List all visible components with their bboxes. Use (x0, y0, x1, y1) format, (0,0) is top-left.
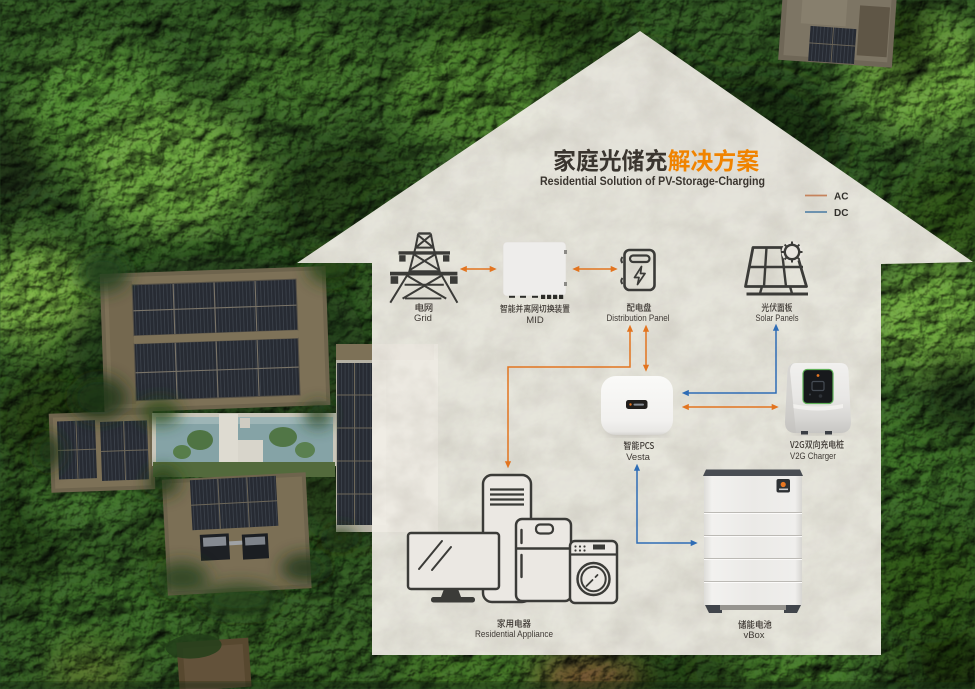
svg-text:Grid: Grid (414, 313, 432, 324)
svg-text:配电盘: 配电盘 (627, 300, 652, 314)
svg-text:Residential Appliance: Residential Appliance (475, 629, 553, 640)
svg-text:DC: DC (834, 208, 848, 219)
svg-text:Residential Solution of PV-Sto: Residential Solution of PV-Storage-Charg… (540, 174, 765, 188)
svg-text:MID: MID (526, 315, 544, 326)
svg-text:AC: AC (834, 192, 848, 203)
svg-text:光伏面板: 光伏面板 (762, 300, 793, 314)
svg-text:电网: 电网 (414, 300, 434, 314)
svg-text:储能电池: 储能电池 (738, 617, 772, 631)
svg-text:Distribution Panel: Distribution Panel (607, 313, 670, 324)
svg-text:vBox: vBox (743, 630, 764, 641)
svg-text:智能并离网切换装置: 智能并离网切换装置 (500, 302, 570, 315)
svg-text:家庭光储充解决方案: 家庭光储充解决方案 (553, 142, 759, 177)
svg-text:Vesta: Vesta (626, 452, 650, 463)
svg-text:Solar Panels: Solar Panels (756, 313, 799, 324)
svg-text:V2G双向充电桩: V2G双向充电桩 (789, 437, 844, 451)
svg-text:家用电器: 家用电器 (497, 616, 531, 630)
svg-text:智能PCS: 智能PCS (624, 438, 655, 452)
svg-text:V2G Charger: V2G Charger (790, 451, 836, 462)
